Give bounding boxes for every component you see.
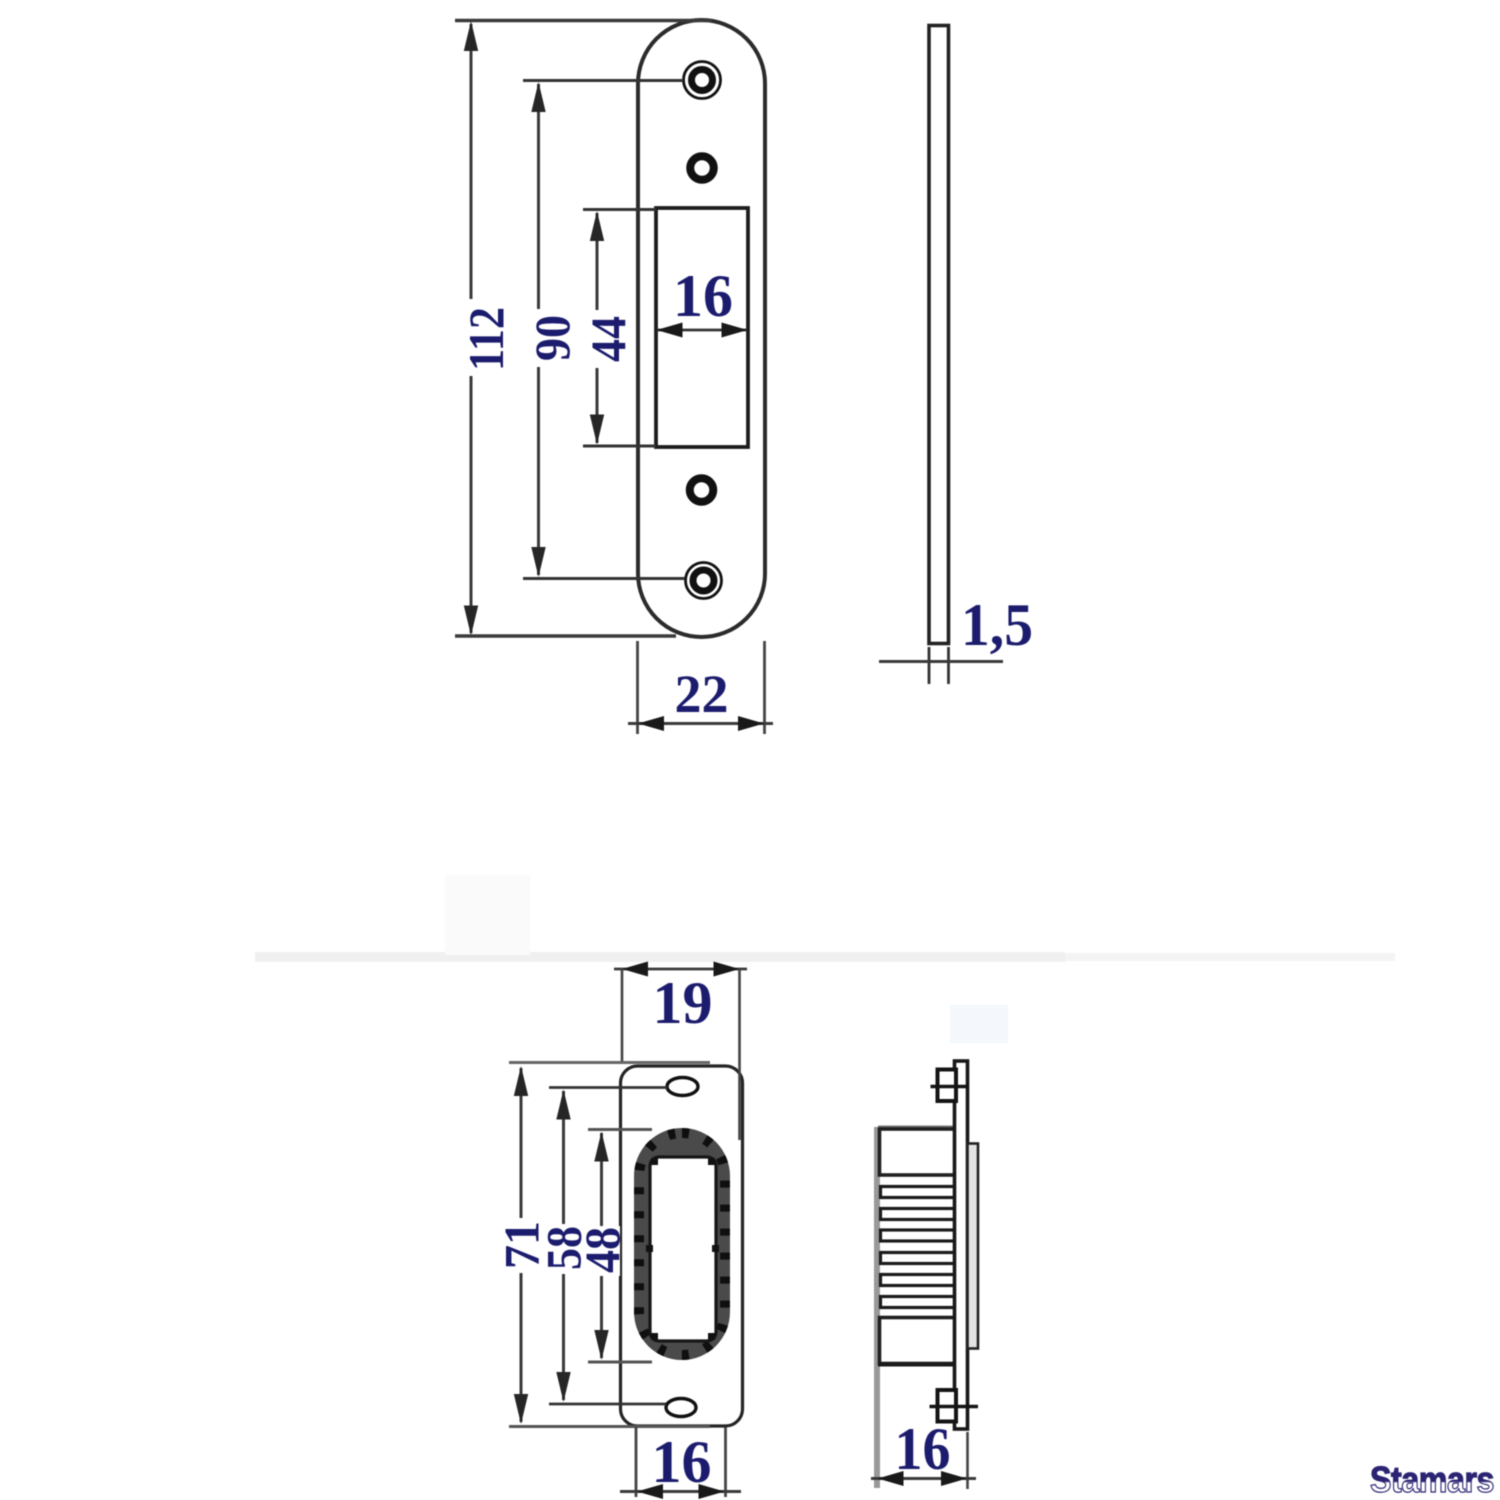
svg-text:90: 90 (524, 315, 580, 361)
svg-text:48: 48 (574, 1227, 630, 1273)
svg-text:16: 16 (673, 263, 733, 329)
svg-text:16: 16 (895, 1416, 951, 1482)
svg-text:Stamars: Stamars (1370, 1459, 1494, 1500)
svg-text:1,5: 1,5 (961, 592, 1033, 658)
svg-text:19: 19 (653, 970, 713, 1036)
svg-text:22: 22 (675, 664, 729, 724)
svg-text:16: 16 (652, 1429, 712, 1495)
svg-text:112: 112 (458, 307, 514, 371)
svg-text:44: 44 (580, 316, 636, 362)
